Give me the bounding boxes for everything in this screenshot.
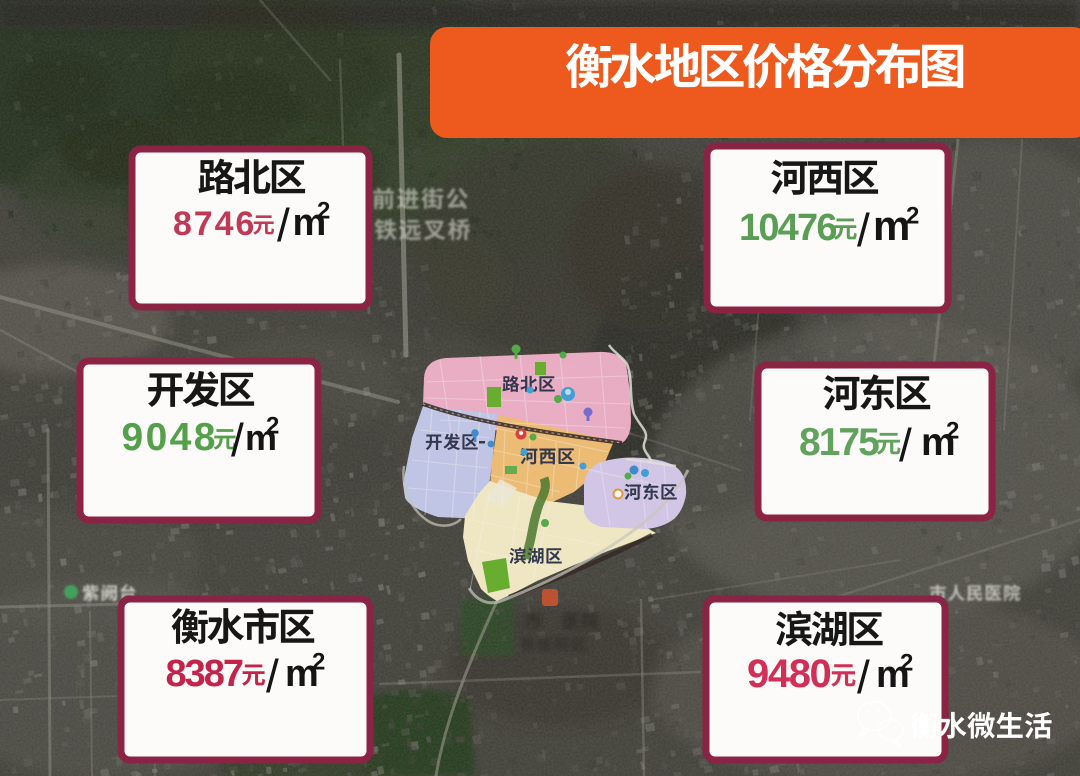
svg-text:2: 2 <box>317 198 330 225</box>
svg-text:2: 2 <box>312 649 325 676</box>
svg-text:9048: 9048 <box>122 416 218 459</box>
svg-text:8746: 8746 <box>173 205 256 243</box>
svg-text:8175: 8175 <box>799 421 879 464</box>
svg-text:9480: 9480 <box>747 652 831 696</box>
svg-text:/: / <box>857 651 870 703</box>
svg-text:2: 2 <box>900 650 913 677</box>
svg-text:m: m <box>873 202 910 249</box>
svg-text:/: / <box>266 650 279 702</box>
svg-text:2: 2 <box>946 418 959 445</box>
svg-text:/: / <box>277 199 290 251</box>
svg-text:10476: 10476 <box>739 207 836 249</box>
svg-text:2: 2 <box>906 203 919 230</box>
svg-text:8387: 8387 <box>166 653 243 695</box>
svg-text:/: / <box>231 414 244 466</box>
svg-text:/: / <box>899 419 912 471</box>
svg-text:/: / <box>857 204 870 256</box>
svg-text:2: 2 <box>266 413 279 440</box>
